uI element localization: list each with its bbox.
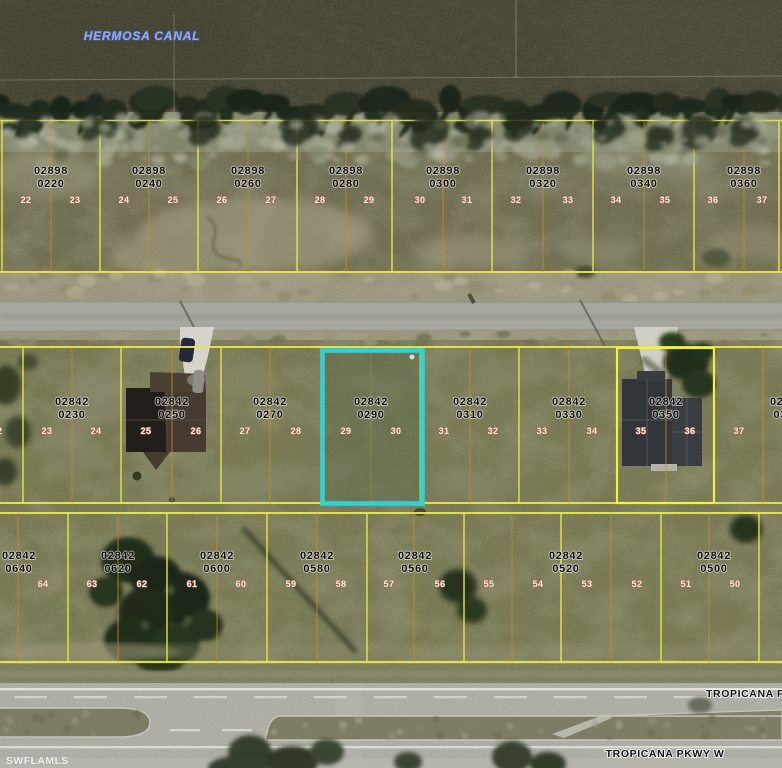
svg-text:62: 62 xyxy=(137,579,148,589)
svg-text:25: 25 xyxy=(168,195,179,205)
svg-text:23: 23 xyxy=(42,426,53,436)
svg-text:53: 53 xyxy=(582,579,593,589)
svg-text:31: 31 xyxy=(439,426,450,436)
svg-text:02842: 02842 xyxy=(649,396,683,408)
svg-text:02842: 02842 xyxy=(398,550,432,562)
svg-text:0320: 0320 xyxy=(529,178,556,190)
svg-text:02842: 02842 xyxy=(253,396,287,408)
svg-text:02842: 02842 xyxy=(453,396,487,408)
svg-text:29: 29 xyxy=(341,426,352,436)
svg-text:0240: 0240 xyxy=(135,178,162,190)
svg-text:0620: 0620 xyxy=(104,563,131,575)
svg-text:02842: 02842 xyxy=(697,550,731,562)
svg-text:02842: 02842 xyxy=(552,396,586,408)
svg-text:SWFLAMLS: SWFLAMLS xyxy=(6,755,69,767)
svg-text:59: 59 xyxy=(286,579,297,589)
svg-text:02842: 02842 xyxy=(549,550,583,562)
svg-text:0560: 0560 xyxy=(401,563,428,575)
svg-text:33: 33 xyxy=(537,426,548,436)
svg-text:0580: 0580 xyxy=(303,563,330,575)
svg-text:02898: 02898 xyxy=(329,165,363,177)
svg-text:34: 34 xyxy=(611,195,622,205)
svg-text:32: 32 xyxy=(488,426,499,436)
svg-text:27: 27 xyxy=(266,195,277,205)
svg-text:30: 30 xyxy=(391,426,402,436)
svg-text:02898: 02898 xyxy=(132,165,166,177)
svg-text:36: 36 xyxy=(708,195,719,205)
svg-text:0330: 0330 xyxy=(555,409,582,421)
svg-text:28: 28 xyxy=(291,426,302,436)
svg-text:25: 25 xyxy=(141,426,152,436)
svg-text:0520: 0520 xyxy=(552,563,579,575)
svg-text:24: 24 xyxy=(91,426,102,436)
svg-text:27: 27 xyxy=(240,426,251,436)
svg-text:28: 28 xyxy=(315,195,326,205)
svg-text:0350: 0350 xyxy=(652,409,679,421)
svg-text:52: 52 xyxy=(632,579,643,589)
svg-text:51: 51 xyxy=(681,579,692,589)
svg-text:02842: 02842 xyxy=(2,550,36,562)
svg-text:0310: 0310 xyxy=(456,409,483,421)
svg-text:22: 22 xyxy=(21,195,32,205)
svg-text:02842: 02842 xyxy=(354,396,388,408)
svg-text:22: 22 xyxy=(0,426,2,436)
svg-text:56: 56 xyxy=(435,579,446,589)
svg-text:02898: 02898 xyxy=(34,165,68,177)
svg-text:58: 58 xyxy=(336,579,347,589)
svg-text:02842: 02842 xyxy=(101,550,135,562)
svg-text:0640: 0640 xyxy=(5,563,32,575)
svg-text:0250: 0250 xyxy=(158,409,185,421)
svg-text:0360: 0360 xyxy=(730,178,757,190)
svg-text:30: 30 xyxy=(415,195,426,205)
svg-text:57: 57 xyxy=(384,579,395,589)
svg-text:02898: 02898 xyxy=(526,165,560,177)
svg-text:TROPICANA PKWY W: TROPICANA PKWY W xyxy=(606,748,725,760)
svg-text:0270: 0270 xyxy=(256,409,283,421)
svg-text:23: 23 xyxy=(70,195,81,205)
svg-text:02842: 02842 xyxy=(155,396,189,408)
svg-text:26: 26 xyxy=(217,195,228,205)
svg-text:32: 32 xyxy=(511,195,522,205)
svg-text:02842: 02842 xyxy=(300,550,334,562)
svg-text:54: 54 xyxy=(533,579,544,589)
svg-text:35: 35 xyxy=(636,426,647,436)
svg-text:55: 55 xyxy=(484,579,495,589)
svg-text:35: 35 xyxy=(660,195,671,205)
svg-text:0290: 0290 xyxy=(357,409,384,421)
svg-text:26: 26 xyxy=(191,426,202,436)
svg-text:0220: 0220 xyxy=(37,178,64,190)
svg-text:02898: 02898 xyxy=(426,165,460,177)
svg-text:63: 63 xyxy=(87,579,98,589)
svg-text:61: 61 xyxy=(187,579,198,589)
svg-text:02898: 02898 xyxy=(627,165,661,177)
svg-text:0600: 0600 xyxy=(203,563,230,575)
svg-text:0300: 0300 xyxy=(429,178,456,190)
svg-text:0260: 0260 xyxy=(234,178,261,190)
svg-text:02842: 02842 xyxy=(55,396,89,408)
svg-text:0370: 0370 xyxy=(773,409,782,421)
svg-text:0230: 0230 xyxy=(58,409,85,421)
svg-text:31: 31 xyxy=(462,195,473,205)
svg-text:36: 36 xyxy=(685,426,696,436)
svg-text:24: 24 xyxy=(119,195,130,205)
svg-text:0340: 0340 xyxy=(630,178,657,190)
svg-text:29: 29 xyxy=(364,195,375,205)
svg-text:02842: 02842 xyxy=(770,396,782,408)
svg-text:02842: 02842 xyxy=(200,550,234,562)
svg-text:0500: 0500 xyxy=(700,563,727,575)
svg-text:60: 60 xyxy=(236,579,247,589)
svg-text:33: 33 xyxy=(563,195,574,205)
svg-text:50: 50 xyxy=(730,579,741,589)
svg-text:HERMOSA CANAL: HERMOSA CANAL xyxy=(84,29,201,43)
svg-text:34: 34 xyxy=(587,426,598,436)
svg-text:37: 37 xyxy=(734,426,745,436)
svg-text:02898: 02898 xyxy=(231,165,265,177)
svg-text:64: 64 xyxy=(38,579,49,589)
svg-text:02898: 02898 xyxy=(727,165,761,177)
svg-text:0280: 0280 xyxy=(332,178,359,190)
svg-text:37: 37 xyxy=(757,195,768,205)
svg-text:TROPICANA PK: TROPICANA PK xyxy=(706,688,782,700)
